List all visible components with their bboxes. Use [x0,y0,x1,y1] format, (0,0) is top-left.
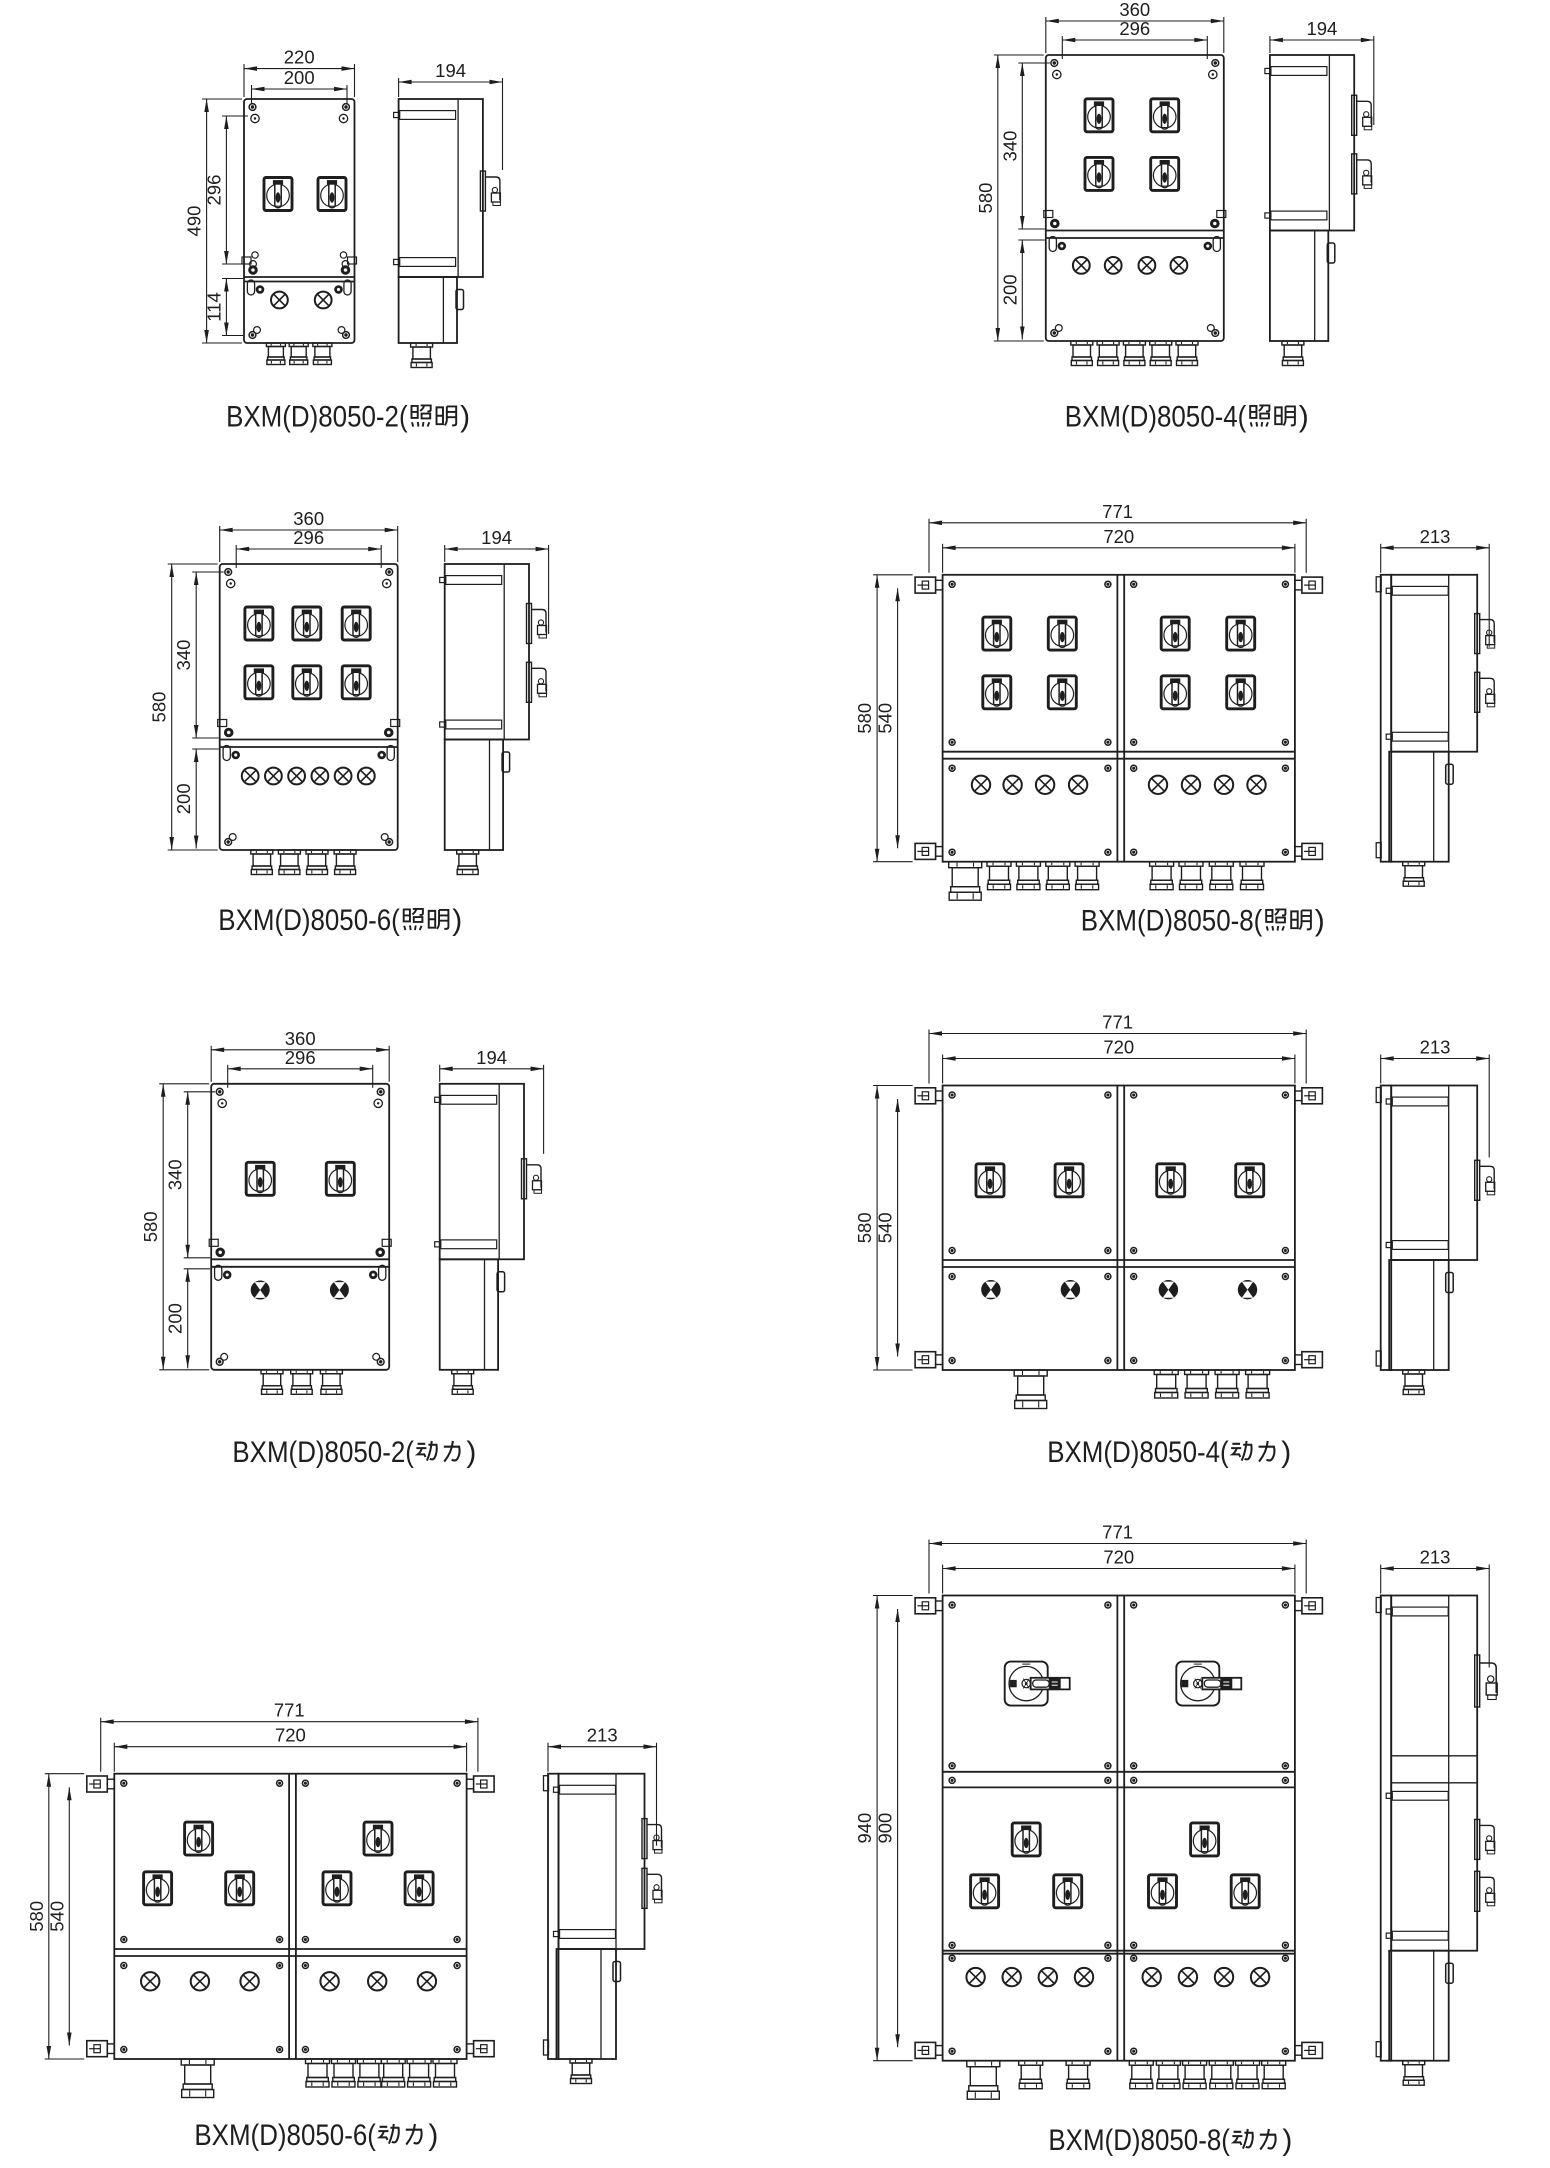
svg-text:580: 580 [854,703,875,734]
svg-text:580: 580 [26,1901,47,1932]
svg-text:720: 720 [1103,526,1134,547]
svg-text:213: 213 [587,1725,618,1746]
svg-text:): ) [460,401,470,434]
svg-text:194: 194 [435,60,466,81]
svg-text:540: 540 [46,1901,67,1932]
svg-text:580: 580 [149,692,170,723]
svg-text:340: 340 [173,640,194,671]
svg-text:200: 200 [999,274,1020,305]
svg-text:220: 220 [284,47,315,68]
svg-text:): ) [1281,1436,1291,1469]
svg-text:114: 114 [203,292,224,322]
svg-text:200: 200 [284,67,315,88]
svg-text:200: 200 [173,783,194,814]
svg-text:360: 360 [293,508,324,529]
svg-text:): ) [1299,401,1309,434]
svg-text:771: 771 [274,1700,305,1721]
svg-text:BXM(D)8050-8(: BXM(D)8050-8( [1081,905,1263,938]
svg-text:213: 213 [1420,526,1451,547]
svg-text:490: 490 [184,206,205,237]
svg-text:296: 296 [203,175,224,206]
svg-text:BXM(D)8050-6(: BXM(D)8050-6( [194,2119,376,2152]
svg-text:): ) [428,2119,438,2152]
svg-text:BXM(D)8050-4(: BXM(D)8050-4( [1065,401,1247,434]
svg-text:296: 296 [1119,18,1150,39]
svg-text:340: 340 [999,131,1020,162]
svg-text:194: 194 [476,1047,507,1068]
svg-text:900: 900 [875,1813,896,1844]
svg-text:BXM(D)8050-8(: BXM(D)8050-8( [1048,2124,1230,2157]
svg-text:200: 200 [165,1303,186,1334]
svg-text:580: 580 [975,183,996,214]
svg-text:540: 540 [875,1212,896,1243]
svg-text:194: 194 [481,527,512,548]
svg-text:296: 296 [293,527,324,548]
svg-text:580: 580 [854,1212,875,1243]
svg-text:580: 580 [140,1211,161,1242]
svg-text:BXM(D)8050-4(: BXM(D)8050-4( [1047,1436,1229,1469]
svg-text:213: 213 [1420,1037,1451,1058]
svg-text:BXM(D)8050-6(: BXM(D)8050-6( [218,904,400,937]
svg-text:BXM(D)8050-2(: BXM(D)8050-2( [232,1436,414,1469]
svg-text:720: 720 [1103,1037,1134,1058]
svg-text:): ) [1282,2124,1292,2157]
svg-text:296: 296 [285,1047,316,1068]
svg-text:194: 194 [1306,18,1337,39]
svg-text:540: 540 [875,703,896,734]
svg-text:BXM(D)8050-2(: BXM(D)8050-2( [226,401,408,434]
svg-text:): ) [466,1436,476,1469]
svg-text:360: 360 [1119,0,1150,20]
svg-text:940: 940 [854,1813,875,1844]
svg-text:): ) [1315,905,1325,938]
svg-text:720: 720 [1103,1547,1134,1568]
svg-text:360: 360 [285,1028,316,1049]
svg-text:213: 213 [1420,1547,1451,1568]
svg-text:771: 771 [1102,501,1133,522]
svg-text:771: 771 [1102,1012,1133,1033]
svg-text:771: 771 [1102,1522,1133,1543]
svg-text:): ) [452,904,462,937]
svg-text:340: 340 [165,1159,186,1190]
svg-text:720: 720 [275,1725,306,1746]
